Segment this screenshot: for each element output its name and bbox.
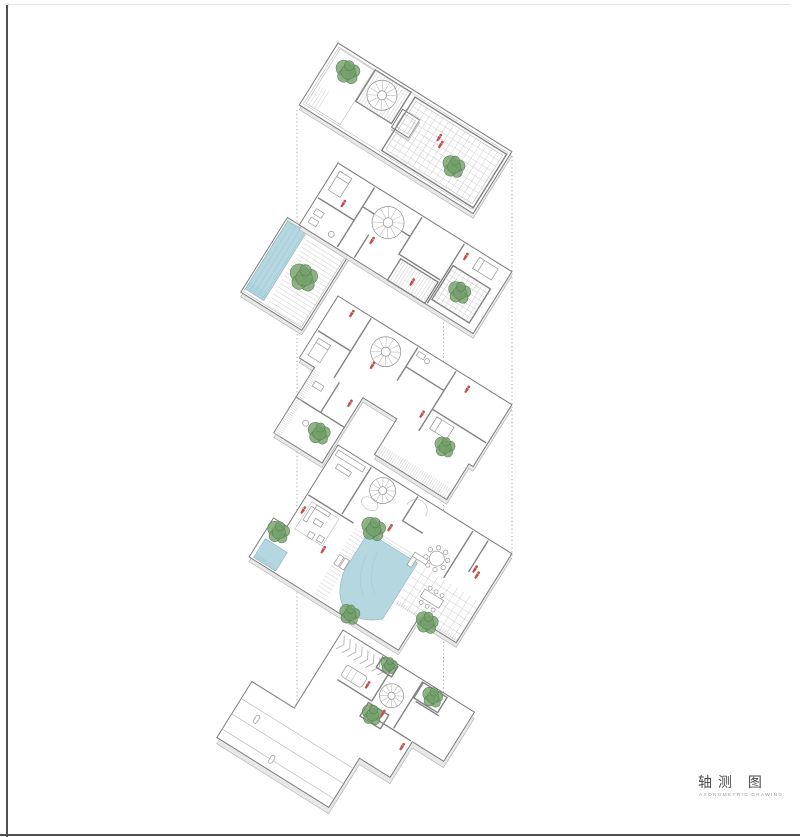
floor-ground [246,436,514,680]
drawing-title: 轴测 图 [698,772,768,792]
floor-basement [214,602,478,837]
drawing-sheet: 轴测 图 AXONOMETRIC DRAWING [0,0,800,837]
drawing-subtitle: AXONOMETRIC DRAWING [699,793,783,798]
axonometric-exploded-diagram [0,0,800,837]
